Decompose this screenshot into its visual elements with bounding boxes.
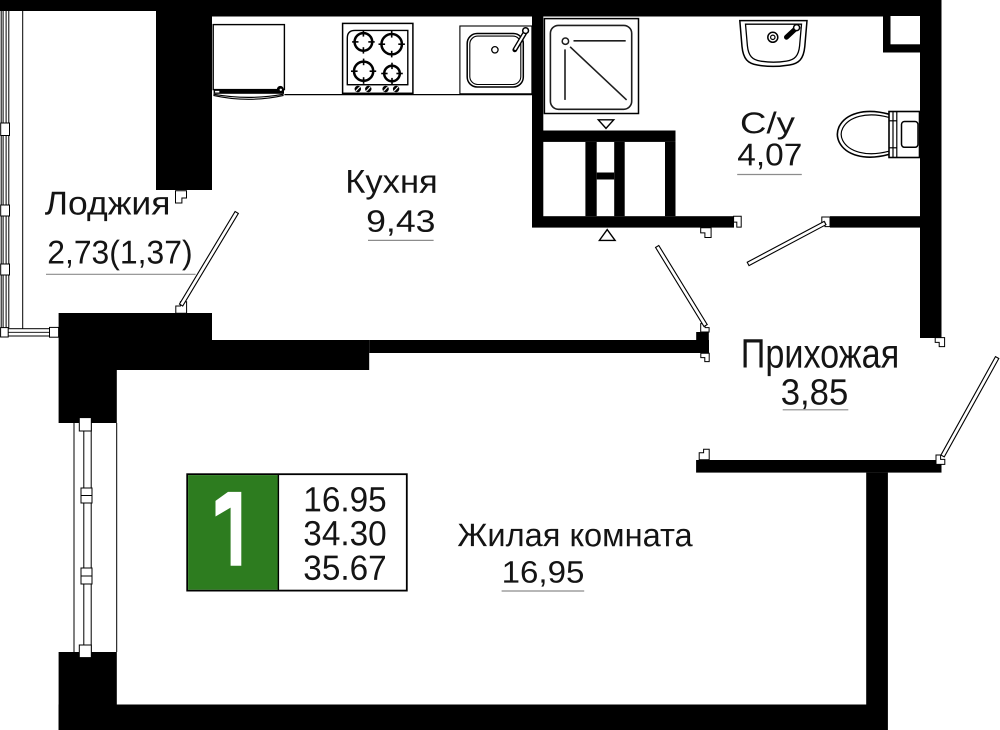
svg-text:9,43: 9,43 xyxy=(366,204,435,239)
svg-text:4,07: 4,07 xyxy=(737,136,802,172)
svg-text:Прихожая: Прихожая xyxy=(741,331,899,377)
svg-text:35.67: 35.67 xyxy=(303,549,386,588)
svg-text:34.30: 34.30 xyxy=(303,514,386,553)
svg-text:Жилая комната: Жилая комната xyxy=(457,516,693,553)
svg-text:3,85: 3,85 xyxy=(781,371,849,412)
svg-text:Лоджия: Лоджия xyxy=(45,184,171,221)
svg-text:С/у: С/у xyxy=(740,107,795,140)
svg-text:Кухня: Кухня xyxy=(345,163,437,200)
svg-text:2,73(1,37): 2,73(1,37) xyxy=(47,233,192,270)
svg-text:16,95: 16,95 xyxy=(502,555,585,590)
